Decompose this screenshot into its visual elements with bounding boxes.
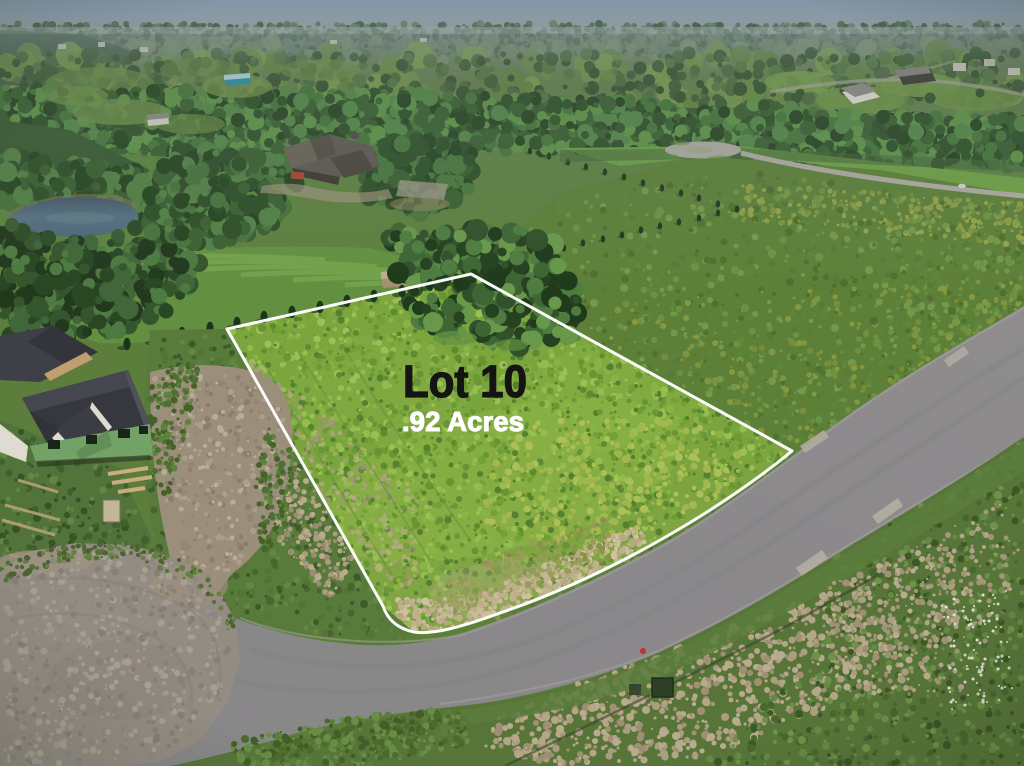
svg-text:Lot 10: Lot 10 bbox=[403, 356, 527, 407]
svg-text:.92 Acres: .92 Acres bbox=[402, 406, 524, 437]
